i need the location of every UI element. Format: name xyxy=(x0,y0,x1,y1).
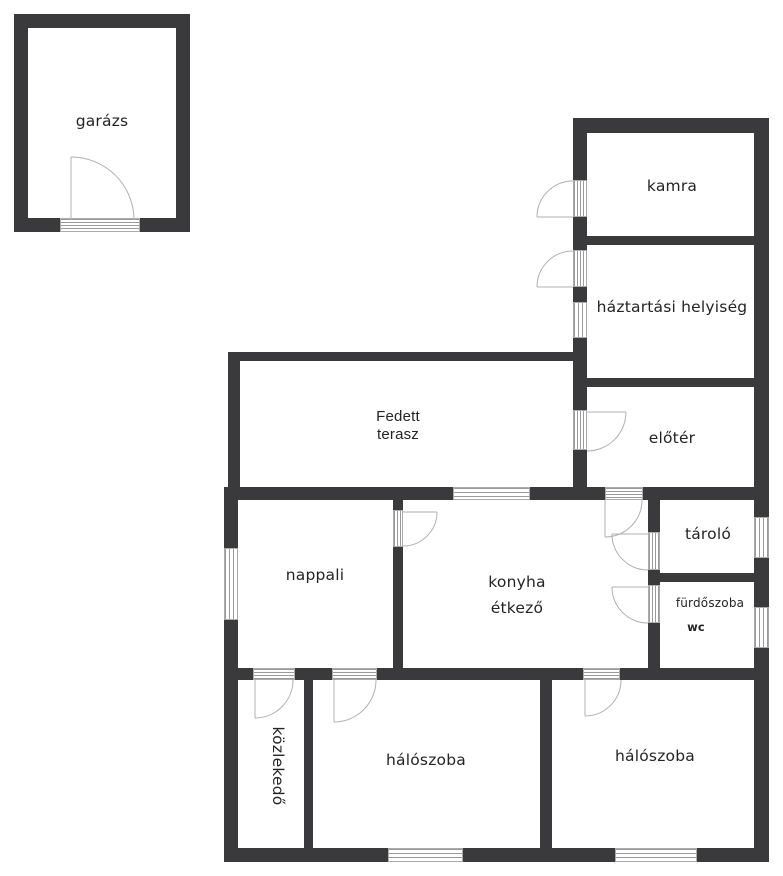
storage-window xyxy=(754,517,769,558)
door-swing-bedroom2 xyxy=(585,680,621,716)
kitchen-label-line1: konyha xyxy=(488,573,545,591)
wall-utility-foyer-partition xyxy=(587,378,754,387)
room-label-foyer: előtér xyxy=(649,429,696,447)
room-label-bathroom: fürdőszoba xyxy=(676,596,744,610)
wall-bedroom1-bedroom2-partition xyxy=(540,668,552,848)
wall-mid-segment xyxy=(643,487,754,500)
wall-kitchen-right-segment xyxy=(648,623,660,668)
wall-garage-top xyxy=(14,14,190,28)
wall-garage-bottom-right xyxy=(140,218,190,232)
wall-right-outer-segment xyxy=(754,133,769,517)
wall-bottom-segment xyxy=(697,848,769,862)
door-swing-foyer xyxy=(587,412,626,451)
wall-wing-left-segment xyxy=(573,287,587,302)
wall-terrace-left xyxy=(228,361,240,487)
wall-wing-left-segment xyxy=(573,338,587,410)
wall-lower-segment xyxy=(620,668,754,680)
wall-living-kitchen-segment xyxy=(393,547,403,668)
door-swing-storage xyxy=(612,534,648,570)
wall-mid-segment xyxy=(530,487,605,500)
wall-living-kitchen-segment xyxy=(393,500,403,510)
room-label-storage: tároló xyxy=(685,525,731,543)
bedroom1-window xyxy=(388,848,463,862)
storage-door-opening xyxy=(648,532,660,570)
room-label-bedroom2: hálószoba xyxy=(615,747,695,765)
floor-plan: garázs kamra háztartási helyiség előtér … xyxy=(0,0,783,876)
door-swing-foyer-kitchen xyxy=(605,500,642,537)
room-label-living: nappali xyxy=(286,566,345,584)
bedroom2-door-opening xyxy=(583,668,620,680)
wall-garage-bottom-left xyxy=(14,218,60,232)
living-window xyxy=(224,548,238,620)
wall-lower-segment xyxy=(377,668,583,680)
wall-storage-bathroom-partition xyxy=(660,573,754,582)
bathroom-window xyxy=(754,607,769,648)
pantry-door-opening xyxy=(573,180,587,217)
wall-wing-top xyxy=(573,118,769,133)
hallway-door-opening xyxy=(253,668,295,680)
living-kitchen-door-opening xyxy=(393,510,403,547)
wall-garage-right xyxy=(176,14,190,232)
utility-door-opening xyxy=(573,250,587,287)
room-label-wc: wc xyxy=(687,620,705,634)
room-label-pantry: kamra xyxy=(647,177,697,195)
wall-bottom-segment xyxy=(463,848,615,862)
wall-lower-segment xyxy=(295,668,332,680)
kitchen-label-line2: étkező xyxy=(491,599,543,617)
wall-wing-left-segment xyxy=(573,217,587,250)
wall-kitchen-right-segment xyxy=(648,570,660,585)
door-swing-living-kitchen xyxy=(403,512,437,546)
garage-door-opening xyxy=(60,218,140,232)
bedroom2-window xyxy=(615,848,697,862)
foyer-kitchen-door-opening xyxy=(605,487,643,500)
wall-hallway-bedroom1-partition xyxy=(304,680,313,848)
room-label-garage: garázs xyxy=(76,112,129,130)
wall-garage-left xyxy=(14,14,28,232)
room-label-bedroom1: hálószoba xyxy=(386,751,466,769)
wall-right-outer-segment xyxy=(754,558,769,607)
bathroom-door-opening xyxy=(648,585,660,623)
door-swing-garage xyxy=(71,157,134,220)
room-label-utility: háztartási helyiség xyxy=(597,298,748,316)
wall-left-outer-segment xyxy=(224,620,238,862)
door-swing-pantry xyxy=(537,181,573,217)
terrace-label-line1: Fedett xyxy=(376,408,420,425)
terrace-label-line2: terasz xyxy=(377,426,419,443)
wall-wing-left-segment xyxy=(573,133,587,180)
wall-pantry-utility-partition xyxy=(587,236,754,245)
wall-right-outer-segment xyxy=(754,648,769,862)
room-label-hallway: közlekedő xyxy=(269,727,287,806)
door-swing-hallway xyxy=(255,680,293,718)
room-label-terrace: Fedett terasz xyxy=(376,408,420,444)
wall-mid-segment xyxy=(224,487,453,500)
wall-bottom-segment xyxy=(224,848,388,862)
foyer-door-opening xyxy=(573,410,587,450)
room-label-kitchen: konyha étkező xyxy=(488,569,545,621)
wall-terrace-top xyxy=(228,352,573,361)
door-swing-bathroom xyxy=(612,587,648,623)
wall-lower-segment xyxy=(238,668,253,680)
wall-kitchen-right-segment xyxy=(648,500,660,532)
bedroom1-door-opening xyxy=(332,668,377,680)
kitchen-top-window xyxy=(453,487,530,500)
door-swing-utility xyxy=(537,251,573,287)
door-swing-bedroom1 xyxy=(334,680,376,722)
wall-left-outer-segment xyxy=(224,500,238,548)
wall-wing-left-segment xyxy=(573,450,587,487)
utility-window xyxy=(573,302,587,338)
